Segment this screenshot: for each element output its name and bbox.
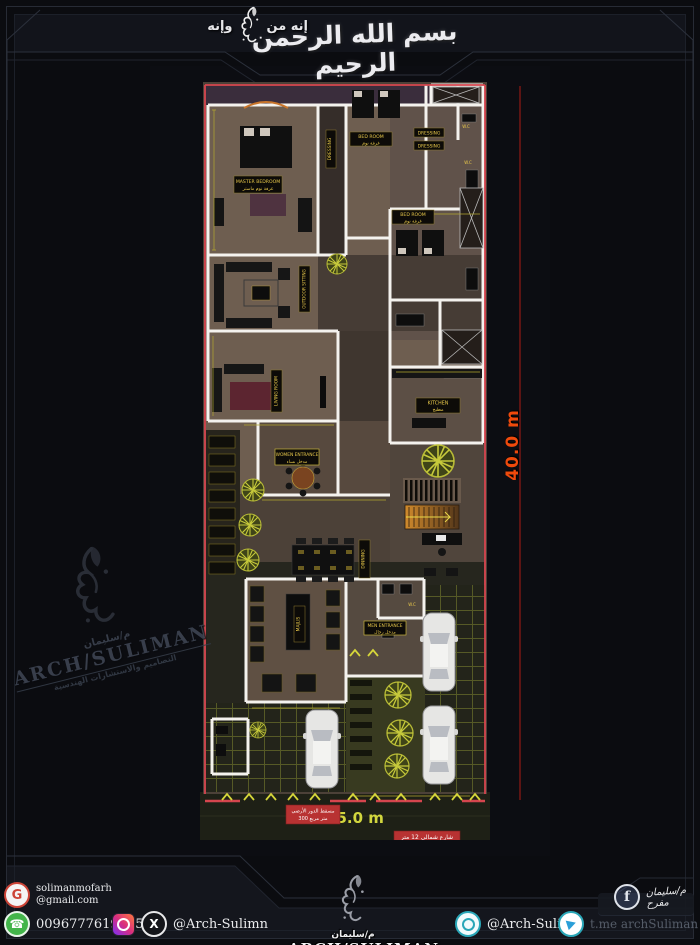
svg-text:BED ROOM: BED ROOM	[358, 134, 383, 140]
svg-text:OUTDOOR SITTING: OUTDOOR SITTING	[302, 269, 307, 309]
street-note: شارع شمالي 12 متر	[394, 831, 460, 840]
tagline-left-text: وإنه	[207, 19, 232, 34]
svg-text:WOMEN ENTRANCE: WOMEN ENTRANCE	[276, 452, 319, 458]
telegram-handle: t.me archSuliman	[590, 917, 698, 931]
label-living-room: LIVING ROOM	[271, 370, 282, 412]
label-outdoor-sitting: OUTDOOR SITTING	[299, 266, 310, 312]
svg-text:MASTER BEDROOM: MASTER BEDROOM	[236, 179, 280, 185]
logo-calligraphy-icon	[336, 874, 370, 926]
x-handle: @Arch-Sulimn	[173, 917, 268, 932]
svg-text:DRESSING: DRESSING	[418, 144, 441, 150]
social-handles: X @Arch-Sulimn	[112, 911, 268, 937]
label-master-bedroom: MASTER BEDROOM غرفة نوم ماستر	[234, 176, 282, 193]
svg-text:300 متر مربع: 300 متر مربع	[298, 816, 327, 822]
instagram-icon	[112, 913, 135, 936]
label-dressing-2: DRESSING	[414, 128, 444, 137]
svg-text:مطبخ: مطبخ	[432, 407, 443, 413]
svg-text:غرفة نوم: غرفة نوم	[404, 220, 422, 225]
label-bedroom-mid: BED ROOM غرفة نوم	[392, 210, 434, 225]
label-wc-2: W.C	[464, 160, 472, 165]
label-women-entrance: WOMEN ENTRANCE مدخل نساء	[275, 449, 319, 465]
email-domain: @gmail.com	[36, 895, 99, 906]
svg-text:MAJLIS: MAJLIS	[296, 616, 302, 631]
logo-name-en: ARCH/SULIMAN	[288, 940, 418, 945]
label-kitchen: KITCHEN مطبخ	[416, 398, 460, 413]
area-note: مسقط الدور الأرضي 300 متر مربع	[286, 805, 340, 824]
label-dressing-3: DRESSING	[414, 141, 444, 150]
email-user: solimanmofarh	[36, 883, 112, 894]
footer-logo: م/سليمان ARCH/SULIMAN التصاميم والاستشار…	[288, 874, 418, 945]
svg-text:W.C: W.C	[464, 160, 472, 165]
gmail-icon: G	[4, 882, 30, 908]
whatsapp-icon: ☎	[4, 911, 30, 937]
telegram-contact: t.me archSuliman	[558, 911, 698, 937]
logo-name-ar: م/سليمان	[288, 930, 418, 940]
x-icon: X	[141, 911, 167, 937]
svg-text:DRESSING: DRESSING	[327, 137, 333, 160]
label-wc-1: W.C	[462, 124, 470, 129]
floor-plan: MASTER BEDROOM غرفة نوم ماستر BED ROOM غ…	[200, 78, 490, 840]
svg-text:DRESSING: DRESSING	[418, 131, 441, 137]
svg-text:W.C: W.C	[408, 602, 416, 607]
svg-text:KITCHEN: KITCHEN	[428, 401, 449, 407]
telegram-icon	[558, 911, 584, 937]
chat-icon	[455, 911, 481, 937]
svg-text:شارع شمالي 12 متر: شارع شمالي 12 متر	[400, 834, 453, 840]
svg-text:DINNING: DINNING	[361, 549, 367, 569]
label-majlis: MAJLIS	[294, 606, 305, 642]
svg-text:غرفة نوم ماستر: غرفة نوم ماستر	[242, 187, 274, 192]
label-dressing-1: DRESSING	[326, 130, 336, 168]
svg-text:غرفة نوم: غرفة نوم	[362, 142, 380, 147]
svg-text:W.C: W.C	[462, 124, 470, 129]
label-men-entrance: MEN ENTRANCE مدخل رجال	[364, 621, 406, 636]
bismillah-calligraphy: بسم الله الرحمن الرحيم	[249, 16, 461, 81]
label-dinning: DINNING	[359, 540, 370, 578]
email-contact: G solimanmofarh @gmail.com	[4, 882, 112, 908]
label-wc-3: W.C	[408, 602, 416, 607]
svg-text:مدخل نساء: مدخل نساء	[287, 460, 308, 465]
height-dimension: 40.0 m	[468, 400, 558, 490]
facebook-icon: f	[614, 884, 640, 910]
facebook-contact: f م/سليمان مفرح	[614, 884, 700, 910]
svg-text:LIVING ROOM: LIVING ROOM	[274, 376, 280, 406]
poster: إنه من وإنه بسم الله الرحمن الرحيم	[0, 0, 700, 945]
facebook-signature: م/سليمان مفرح	[645, 884, 700, 910]
svg-text:BED ROOM: BED ROOM	[400, 212, 425, 218]
svg-text:MEN ENTRANCE: MEN ENTRANCE	[368, 623, 403, 629]
svg-text:مدخل رجال: مدخل رجال	[374, 631, 395, 636]
svg-text:مسقط الدور الأرضي: مسقط الدور الأرضي	[291, 808, 334, 815]
label-bedroom-top: BED ROOM غرفة نوم	[350, 132, 392, 147]
watermark-calligraphy-icon	[59, 541, 130, 637]
